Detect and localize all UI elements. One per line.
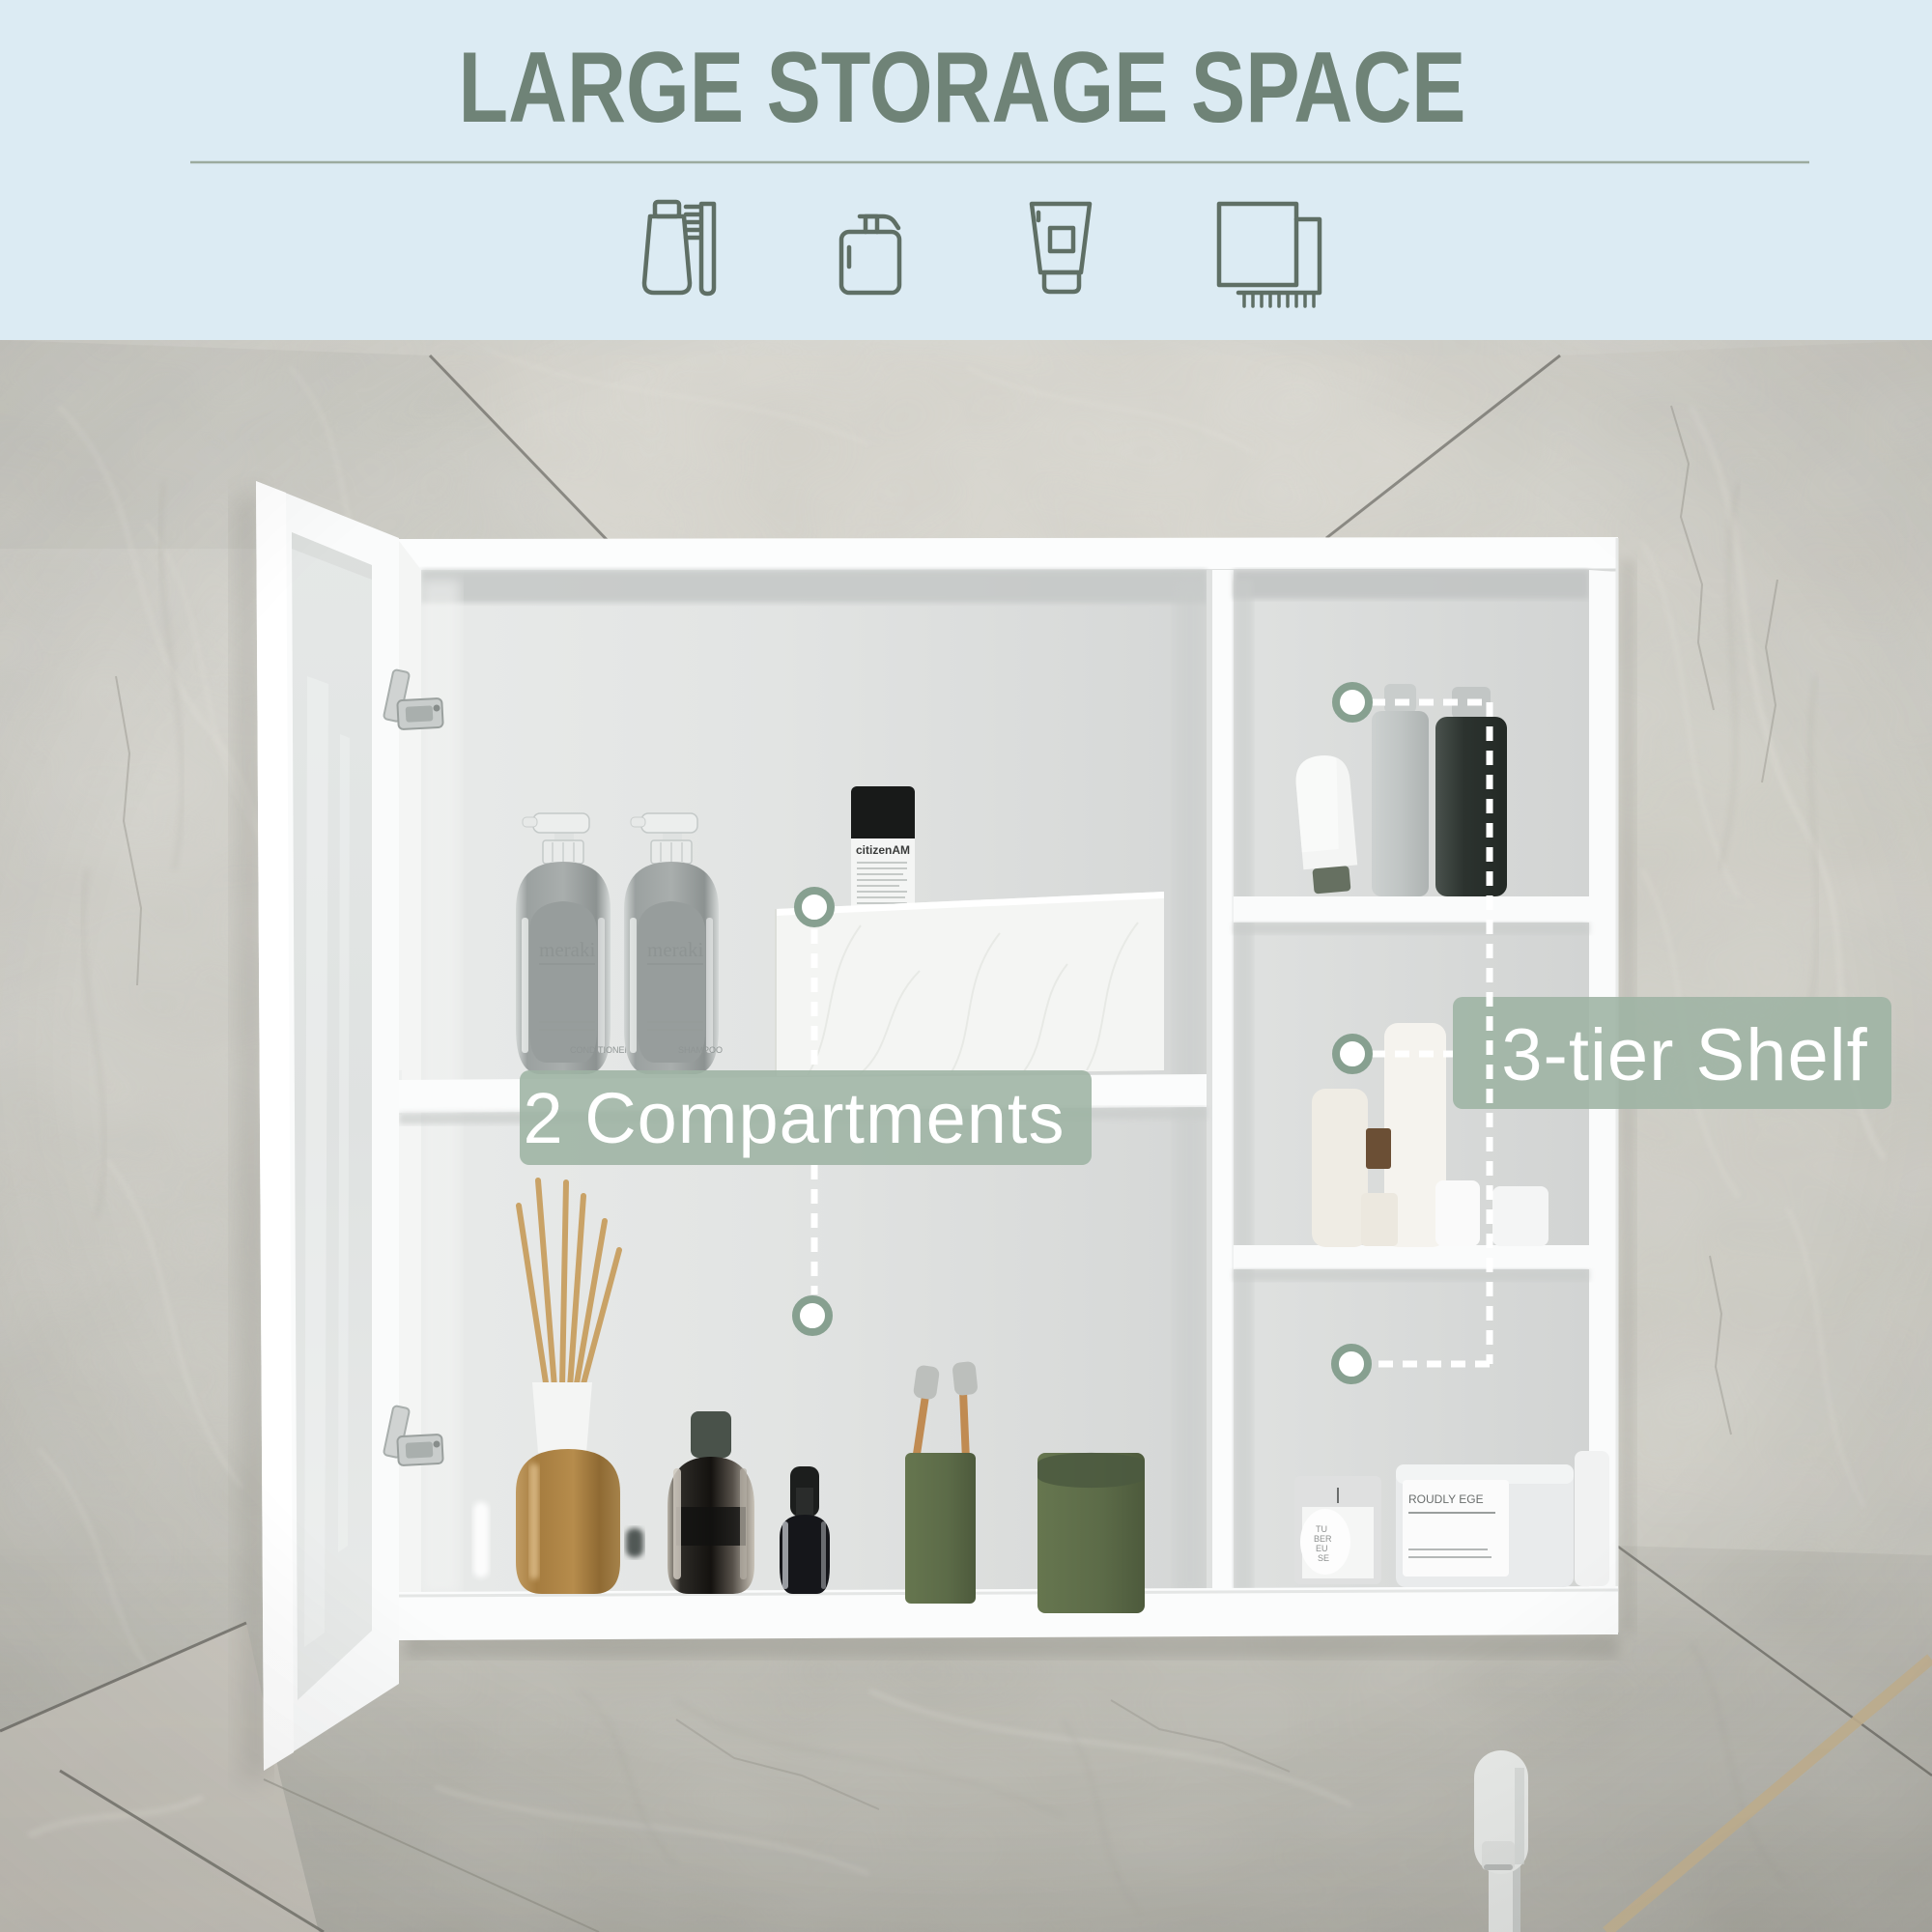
svg-text:2 Compartments: 2 Compartments <box>524 1078 1065 1158</box>
svg-text:3-tier Shelf: 3-tier Shelf <box>1501 1014 1868 1096</box>
svg-text:LARGE STORAGE SPACE: LARGE STORAGE SPACE <box>459 32 1466 144</box>
